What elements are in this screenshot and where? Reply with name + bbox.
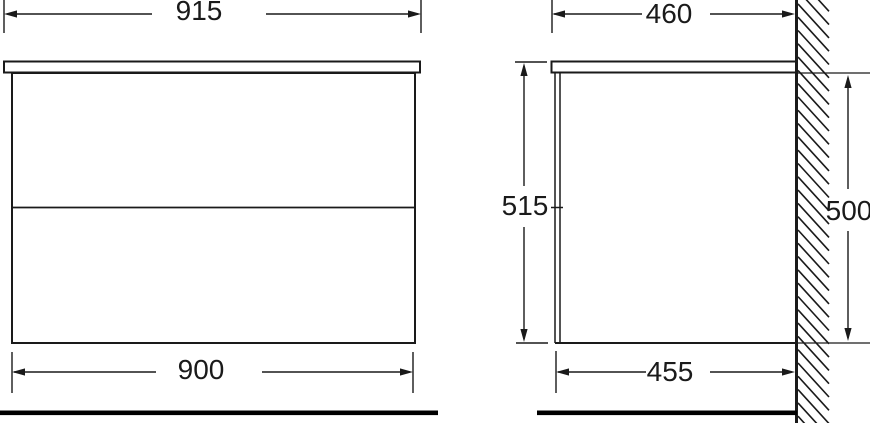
hatch-line — [798, 336, 829, 370]
technical-drawing: 915 900 — [0, 0, 870, 423]
dim-label-460: 460 — [646, 0, 693, 29]
hatch-line — [798, 376, 829, 410]
hatch-line — [798, 363, 829, 397]
arrowhead-right-icon — [782, 10, 795, 17]
hatch-line — [798, 57, 829, 91]
dimension-515: 515 — [502, 62, 549, 343]
hatch-line — [798, 203, 829, 237]
arrowhead-right-icon — [400, 368, 413, 375]
hatch-line — [798, 217, 829, 251]
hatch-line — [798, 70, 829, 104]
hatch-line — [798, 17, 829, 51]
dimension-460: 460 — [552, 0, 795, 33]
front-view: 915 900 — [0, 0, 438, 415]
drawing-canvas: 915 900 — [0, 0, 870, 423]
arrowhead-left-icon — [12, 368, 25, 375]
hatch-line — [798, 310, 829, 344]
wall-hatch-pattern — [798, 0, 829, 423]
hatch-line — [798, 350, 829, 384]
arrowhead-right-icon — [782, 368, 795, 375]
dimension-500: 500 — [798, 73, 870, 343]
floor-line-side — [537, 411, 797, 416]
floor-line-front — [0, 411, 438, 416]
hatch-line — [798, 270, 829, 304]
arrowhead-up-icon — [520, 63, 527, 76]
arrowhead-left-icon — [556, 368, 569, 375]
hatch-line — [798, 283, 829, 317]
hatch-line — [798, 257, 829, 291]
dim-label-455: 455 — [647, 356, 694, 387]
hatch-line — [798, 137, 829, 171]
dim-label-900: 900 — [178, 354, 225, 385]
arrowhead-right-icon — [408, 10, 421, 17]
arrowhead-left-icon — [552, 10, 565, 17]
hatch-line — [798, 31, 829, 65]
arrowhead-down-icon — [520, 329, 527, 342]
arrowhead-up-icon — [844, 75, 851, 88]
hatch-line — [798, 177, 829, 211]
hatch-line — [798, 97, 829, 131]
hatch-line — [798, 124, 829, 158]
dimension-900: 900 — [12, 352, 413, 393]
arrowhead-down-icon — [844, 328, 851, 341]
hatch-line — [798, 4, 829, 38]
arrowhead-left-icon — [4, 10, 17, 17]
hatch-line — [798, 150, 829, 184]
dim-label-515: 515 — [502, 190, 549, 221]
hatch-line — [798, 297, 829, 331]
hatch-line — [798, 323, 829, 357]
hatch-line — [798, 110, 829, 144]
hatch-line — [798, 164, 829, 198]
hatch-line — [798, 243, 829, 277]
dim-label-915: 915 — [176, 0, 223, 26]
dimension-455: 455 — [556, 351, 795, 393]
hatch-line — [798, 230, 829, 264]
side-view: 460 515 — [502, 0, 870, 423]
countertop-front — [4, 62, 420, 73]
hatch-line — [798, 84, 829, 118]
countertop-side — [552, 62, 797, 73]
dim-label-500: 500 — [826, 195, 870, 226]
dimension-915: 915 — [4, 0, 421, 33]
hatch-line — [798, 190, 829, 224]
